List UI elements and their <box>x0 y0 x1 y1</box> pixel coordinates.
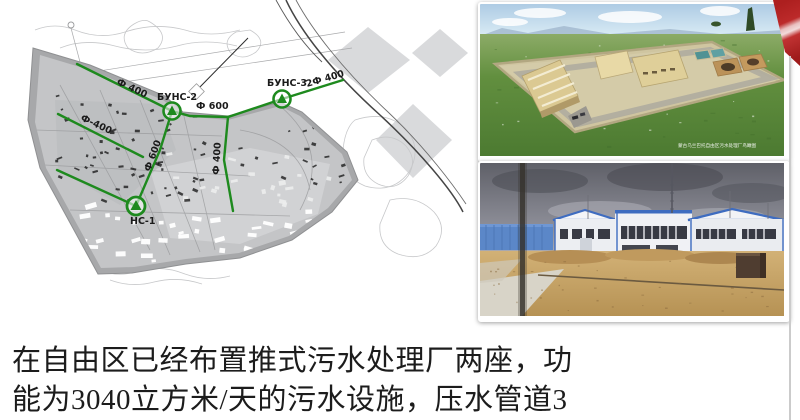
road-diagonal <box>197 38 248 90</box>
bush <box>711 22 721 27</box>
pump-station-node-buns2 <box>164 103 181 120</box>
blue-fence <box>480 224 553 250</box>
label-station-ns1: НС-1 <box>130 216 155 227</box>
body-text-line-2: 能为3040立方米/天的污水设施，压水管道3 <box>12 381 652 420</box>
pool-2 <box>710 48 726 58</box>
label-station-buns3: БУНС-3 <box>267 78 307 89</box>
label-pipe-f400-vertical: Ф 400 <box>211 142 224 175</box>
background-diamonds <box>328 27 468 178</box>
pipeline-plan-map: Ф 400 БУНС-2 Ф 600 БУНС-3 2Ф 400 Ф-400 Ф… <box>0 0 470 345</box>
pool-1 <box>694 50 711 60</box>
slide-right-edge <box>789 56 791 420</box>
body-text: 在自由区已经布置推式污水处理厂两座，功 能为3040立方米/天的污水设施，压水管… <box>12 342 652 420</box>
slide: Ф 400 БУНС-2 Ф 600 БУНС-3 2Ф 400 Ф-400 Ф… <box>0 0 800 420</box>
corner-ribbon-decoration <box>755 0 800 68</box>
photo-watermark-caption: 蒙古乌兰巴托自由区污水处理厂鸟瞰图 <box>678 142 757 149</box>
foreground-pole-streak <box>518 163 527 316</box>
label-station-buns2: БУНС-2 <box>157 92 197 103</box>
body-text-line-1: 在自由区已经布置推式污水处理厂两座，功 <box>12 342 652 381</box>
pump-station-node-ns1 <box>127 197 145 215</box>
photo-site <box>478 161 790 322</box>
container-box <box>736 253 766 278</box>
photo-aerial-render: 蒙古乌兰巴托自由区污水处理厂鸟瞰图 <box>478 2 790 162</box>
survey-marker <box>68 22 74 28</box>
ribbon-shape <box>773 0 800 66</box>
label-pipe-f600-main: Ф 600 <box>196 101 229 112</box>
pump-station-node-buns3 <box>274 91 291 108</box>
